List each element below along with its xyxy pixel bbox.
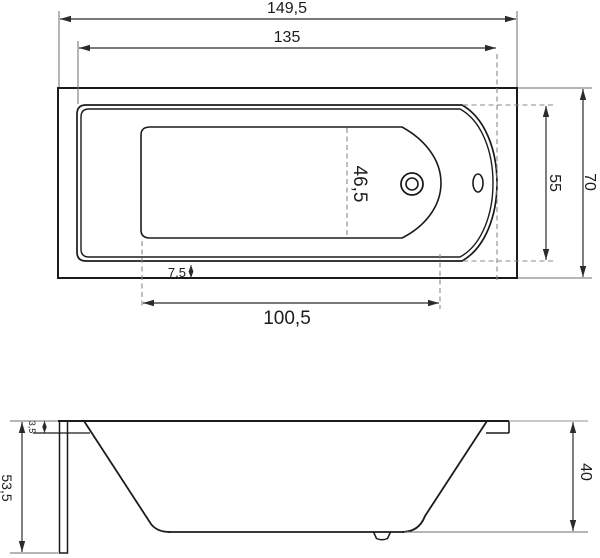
label-rim-height: 3,5 <box>27 421 37 434</box>
side-wall-left <box>84 421 170 532</box>
tub-outer-flange <box>58 88 517 278</box>
side-view <box>33 421 509 553</box>
label-body-height: 40 <box>577 463 594 481</box>
drain-outlet-bump <box>374 532 391 540</box>
label-rim-to-edge: 7,5 <box>168 265 186 280</box>
small-arrowheads <box>42 265 193 433</box>
label-overall-length: 149,5 <box>267 0 307 17</box>
label-center-width: 46,5 <box>349 166 370 203</box>
top-view <box>58 88 517 278</box>
arrow-35-down <box>42 427 46 433</box>
side-wall-right <box>402 421 487 532</box>
label-rim-length: 135 <box>274 29 301 46</box>
arrow-35-up <box>42 421 46 427</box>
technical-drawing: 149,5 135 100,5 7,5 46,5 55 70 53,5 3,5 … <box>0 0 600 558</box>
label-basin-length: 100,5 <box>263 308 311 329</box>
label-total-height: 53,5 <box>0 474 15 501</box>
side-leg-panel <box>60 421 68 553</box>
label-overall-width: 70 <box>581 173 598 191</box>
bathtub-drawing-svg: 149,5 135 100,5 7,5 46,5 55 70 53,5 3,5 … <box>0 0 600 558</box>
label-rim-width: 55 <box>546 174 563 192</box>
